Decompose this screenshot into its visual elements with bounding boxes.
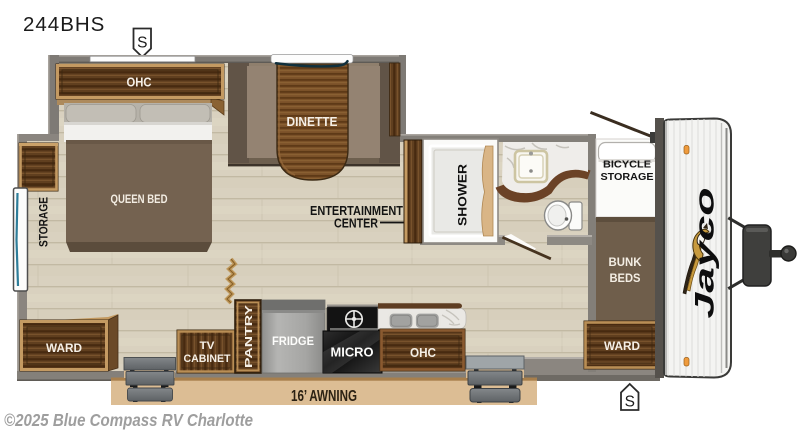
svg-text:WARD: WARD [46,343,82,355]
svg-text:WARD: WARD [604,341,640,353]
svg-text:OHC: OHC [127,76,152,90]
svg-text:PANTRY: PANTRY [243,305,255,368]
svg-text:BICYCLE: BICYCLE [603,159,651,171]
svg-text:Jayco: Jayco [690,188,720,319]
svg-text:TV: TV [200,340,216,352]
svg-text:DINETTE: DINETTE [287,115,338,129]
svg-text:FRIDGE: FRIDGE [272,334,314,348]
svg-text:S: S [625,394,635,411]
svg-text:©2025 Blue Compass RV Charlott: ©2025 Blue Compass RV Charlotte [4,410,253,430]
svg-text:S: S [137,35,147,52]
svg-text:244BHS: 244BHS [23,13,105,36]
svg-text:SHOWER: SHOWER [456,164,470,226]
svg-text:STORAGE: STORAGE [39,197,51,247]
svg-text:OHC: OHC [410,346,436,360]
svg-text:BEDS: BEDS [610,273,641,285]
svg-text:MICRO: MICRO [331,346,374,360]
svg-text:BUNK: BUNK [609,257,643,269]
svg-text:CENTER: CENTER [334,217,378,231]
svg-text:16’ AWNING: 16’ AWNING [291,388,357,405]
svg-text:QUEEN BED: QUEEN BED [111,192,168,206]
svg-text:STORAGE: STORAGE [601,171,654,183]
svg-text:CABINET: CABINET [184,353,231,365]
